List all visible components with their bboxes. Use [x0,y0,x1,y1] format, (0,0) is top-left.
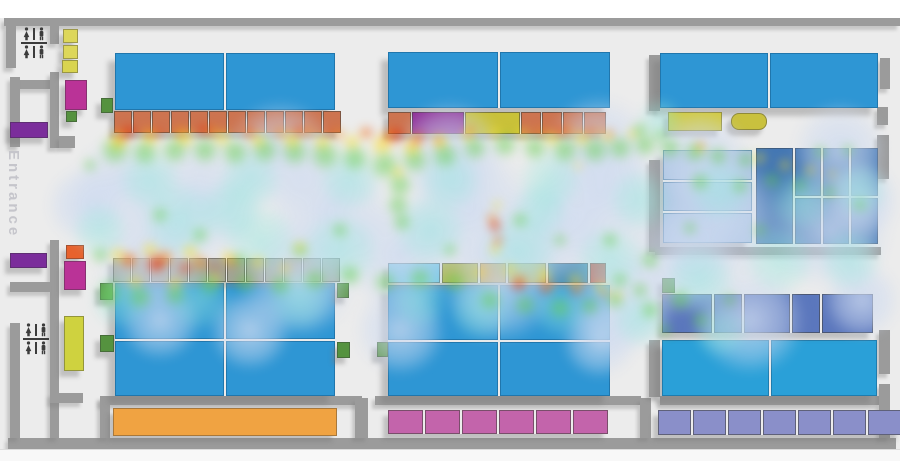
stand-section[interactable] [226,341,335,397]
booth[interactable] [798,410,831,435]
booth[interactable] [508,263,546,283]
booth-row [113,258,340,282]
stand-section[interactable] [770,53,878,108]
wall-segment [880,58,890,89]
exhibit-stand[interactable] [115,53,335,110]
booth[interactable] [101,98,113,113]
divider [33,28,35,40]
divider [35,324,37,336]
booth[interactable] [658,410,691,435]
booth[interactable] [795,148,821,196]
stand-section[interactable] [115,53,224,110]
wall-segment [4,18,900,26]
exhibit-stand[interactable] [663,150,752,243]
booth[interactable] [304,111,322,133]
booth[interactable] [113,258,131,282]
booth[interactable] [756,148,793,244]
restroom-row [21,45,47,59]
booth-row [662,294,873,333]
booth[interactable] [337,342,350,358]
divider [35,342,37,354]
exhibit-stand[interactable] [662,340,877,396]
booth[interactable] [662,278,675,293]
booth[interactable] [265,258,283,282]
stand-section[interactable] [388,52,498,108]
exhibit-stand[interactable] [388,285,610,396]
booth[interactable] [728,410,761,435]
man-icon [37,45,46,59]
booth[interactable] [208,258,226,282]
stand-section[interactable] [500,342,610,397]
stand-section[interactable] [500,52,610,108]
booth[interactable] [247,111,265,133]
booth[interactable] [668,112,722,131]
booth[interactable] [763,410,796,435]
booth[interactable] [337,283,349,298]
exhibit-stand[interactable] [660,53,878,108]
wall-segment [879,330,890,374]
wall-segment [649,55,660,111]
restroom-row [23,323,49,337]
booth[interactable] [114,111,132,133]
booth[interactable] [851,148,878,196]
booth-row [114,111,341,133]
entrance-label: Entrance [5,150,22,238]
booth[interactable] [322,258,340,282]
booth-row [388,112,606,134]
booth[interactable] [284,258,302,282]
booth[interactable] [714,294,742,333]
restroom-sign [21,27,47,59]
booth[interactable] [189,258,207,282]
booth[interactable] [388,410,423,434]
bottom-margin [0,449,900,461]
booth-row [388,263,606,283]
booth[interactable] [792,294,820,333]
restroom-sign [23,323,49,355]
stand-section[interactable] [662,340,769,396]
wall-segment [10,323,20,438]
booth[interactable] [100,283,113,300]
stand-section[interactable] [388,285,498,340]
stand-section[interactable] [226,53,335,110]
booth[interactable] [542,112,562,134]
booth-row [658,410,900,435]
booth[interactable] [132,258,150,282]
stand-section[interactable] [115,283,224,339]
wall-segment [50,240,59,438]
booth[interactable] [868,410,900,435]
booth[interactable] [573,410,608,434]
booth[interactable] [442,263,478,283]
booth[interactable] [823,148,849,196]
booth[interactable] [693,410,726,435]
woman-icon [24,323,33,337]
man-icon [39,341,48,355]
booth[interactable] [465,112,520,134]
booth[interactable] [170,258,188,282]
booth[interactable] [548,263,588,283]
wall-segment [649,340,660,397]
stand-section[interactable] [663,182,752,212]
wall-segment [375,396,641,405]
booth[interactable] [795,198,821,244]
booth[interactable] [744,294,790,333]
booth[interactable] [246,258,264,282]
booth[interactable] [303,258,321,282]
booth[interactable] [152,111,170,133]
wall-segment [6,26,16,68]
booth[interactable] [266,111,284,133]
stand-section[interactable] [663,213,752,243]
booth[interactable] [536,410,571,434]
booth[interactable] [209,111,227,133]
restroom-row [23,341,49,355]
booth[interactable] [100,335,114,352]
man-icon [37,27,46,41]
booth-row [388,410,608,434]
wall-segment [18,80,51,89]
booth[interactable] [822,294,873,333]
booth[interactable] [823,198,849,244]
wall-segment [59,136,75,148]
booth[interactable] [425,410,460,434]
booth[interactable] [584,112,606,134]
divider [33,46,35,58]
wall-segment [100,398,110,438]
booth[interactable] [377,342,388,357]
booth[interactable] [228,111,246,133]
divider [21,42,47,44]
booth[interactable] [412,112,464,134]
booth[interactable] [151,258,169,282]
booth[interactable] [63,45,78,59]
stand-section[interactable] [500,285,610,340]
booth[interactable] [851,198,878,244]
woman-icon [22,27,31,41]
stand-section[interactable] [226,283,335,339]
stand-section[interactable] [771,340,878,396]
booth[interactable] [62,60,78,73]
booth[interactable] [171,111,189,133]
booth[interactable] [388,263,440,283]
booth[interactable] [65,80,87,110]
man-icon [39,323,48,337]
booth[interactable] [113,408,337,436]
booth[interactable] [480,263,506,283]
booth[interactable] [64,261,86,290]
wall-segment [8,438,896,449]
wall-segment [877,135,889,179]
wall-segment [50,393,83,403]
booth[interactable] [285,111,303,133]
booth[interactable] [10,253,47,268]
booth[interactable] [499,410,534,434]
stand-section[interactable] [660,53,768,108]
booth[interactable] [590,263,606,283]
wall-segment [10,282,51,292]
booth[interactable] [64,316,84,371]
woman-icon [24,341,33,355]
booth[interactable] [662,294,712,333]
booth[interactable] [66,245,84,259]
stand-section[interactable] [115,341,224,397]
booth[interactable] [66,111,77,122]
booth[interactable] [563,112,583,134]
booth[interactable] [323,111,341,133]
exhibit-stand[interactable] [388,52,610,108]
divider [23,338,49,340]
exhibit-stand[interactable] [115,283,335,396]
wall-segment [50,72,59,148]
booth[interactable] [521,112,541,134]
wall-segment [355,398,368,438]
stand-section[interactable] [663,150,752,180]
booth[interactable] [133,111,151,133]
booth[interactable] [462,410,497,434]
restroom-row [21,27,47,41]
woman-icon [22,45,31,59]
booth[interactable] [190,111,208,133]
wall-segment [100,396,362,405]
stand-section[interactable] [388,342,498,397]
booth[interactable] [227,258,245,282]
wall-segment [660,396,880,405]
wall-segment [50,26,59,44]
wall-segment [649,160,660,252]
booth[interactable] [10,122,48,138]
booth[interactable] [731,113,767,130]
booth[interactable] [388,112,411,134]
wall-segment [655,247,881,255]
booth[interactable] [833,410,866,435]
wall-segment [877,107,888,125]
booth[interactable] [63,29,78,43]
floorplan-canvas: Entrance [0,0,900,461]
wall-segment [640,398,651,438]
